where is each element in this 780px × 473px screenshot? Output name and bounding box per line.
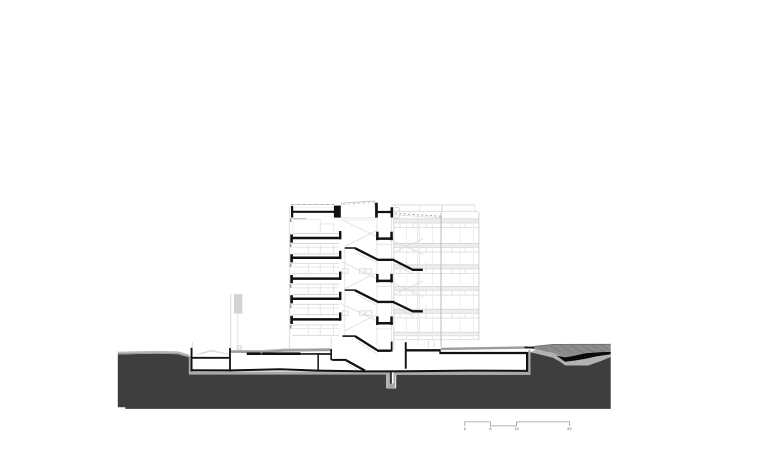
svg-text:20: 20	[567, 427, 571, 431]
svg-text:0: 0	[464, 427, 466, 431]
svg-text:5: 5	[489, 427, 491, 431]
svg-text:10: 10	[514, 427, 518, 431]
